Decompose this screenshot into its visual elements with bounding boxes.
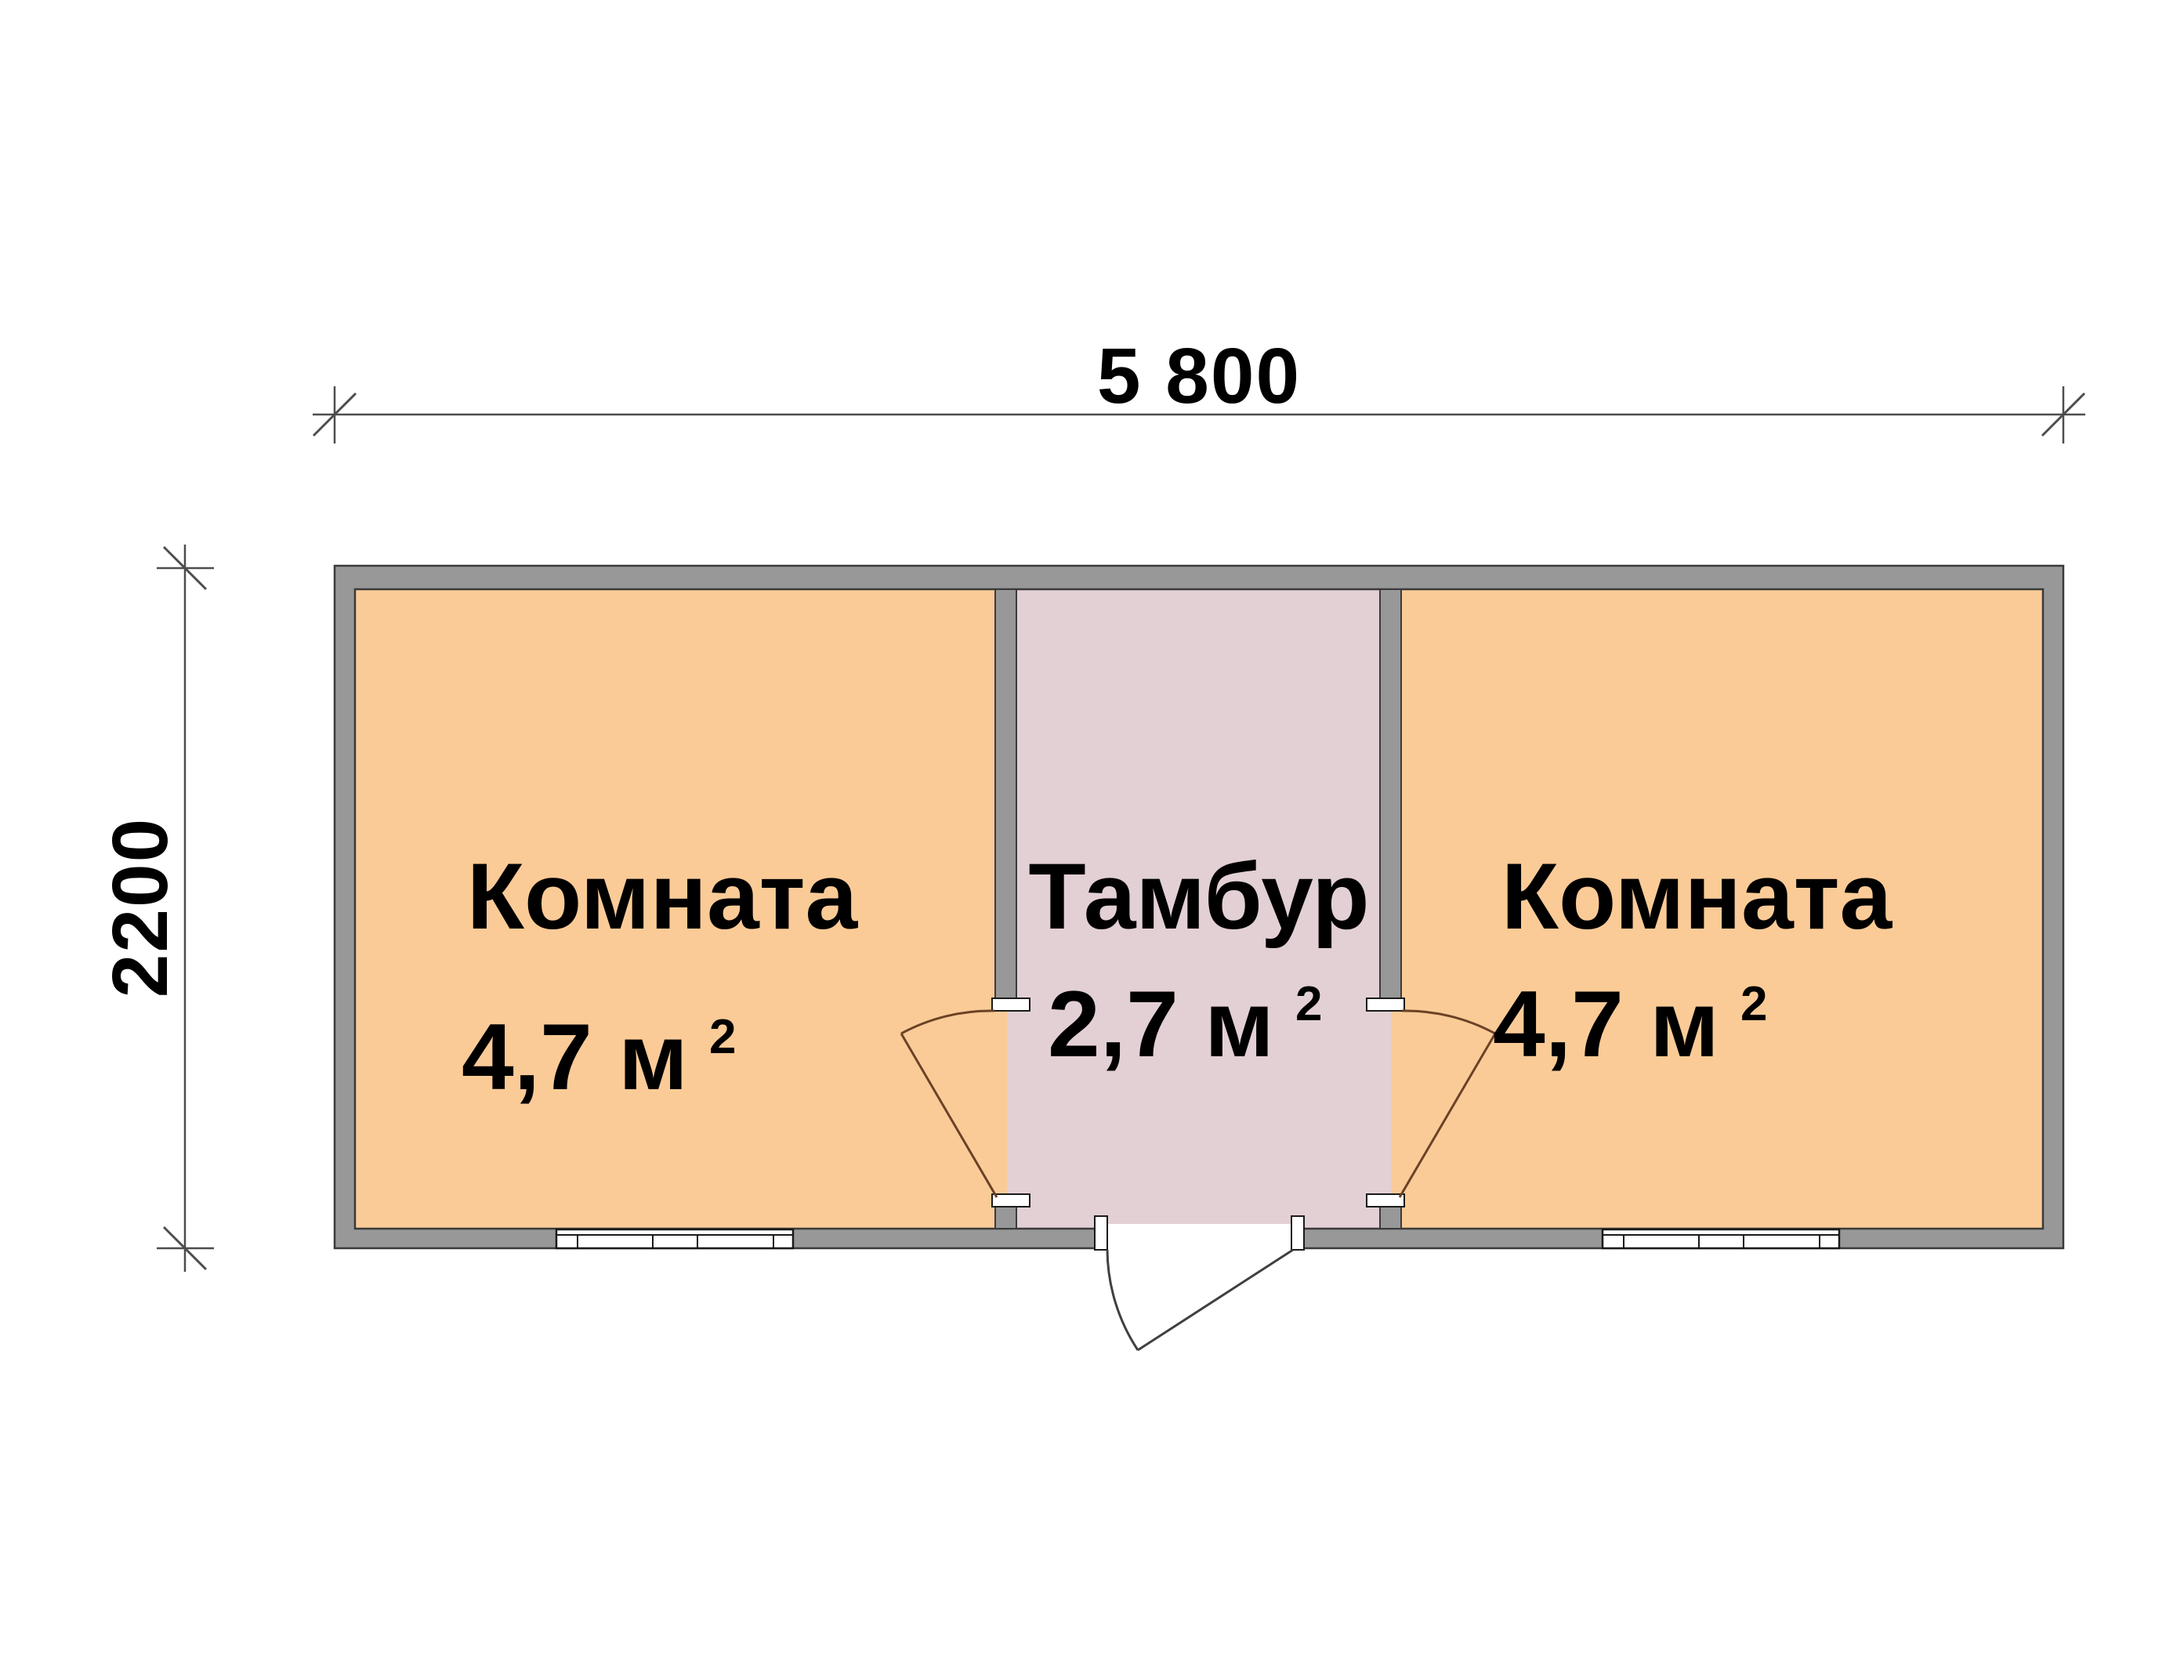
entrance-jamb-right — [1291, 1216, 1304, 1250]
dimension-height-label: 2200 — [96, 817, 184, 997]
partition-left-stub — [995, 1207, 1016, 1229]
partition-right-upper — [1380, 589, 1401, 998]
left-door-jamb-top — [992, 998, 1030, 1011]
room-right-area-sup: 2 — [1740, 977, 1767, 1031]
partition-left-upper — [995, 589, 1016, 998]
right-door-jamb-top — [1367, 998, 1404, 1011]
floor-plan-canvas: 5 800 2200 Комната 4,7 м 2 Тамбур 2,7 м … — [0, 0, 2184, 1680]
room-left-name: Комната — [467, 844, 859, 949]
room-right-area: 4,7 м — [1493, 972, 1719, 1077]
room-left-area: 4,7 м — [462, 1005, 688, 1110]
left-door-jamb-bottom — [992, 1194, 1030, 1207]
vestibule-name: Тамбур — [1028, 844, 1369, 949]
partition-right-stub — [1380, 1207, 1401, 1229]
window-right — [1603, 1229, 1839, 1248]
dimension-width-label: 5 800 — [1097, 332, 1301, 420]
entrance-opening — [1108, 1224, 1291, 1254]
floor-plan-drawing: 5 800 2200 Комната 4,7 м 2 Тамбур 2,7 м … — [0, 0, 2184, 1680]
vestibule-area-sup: 2 — [1295, 977, 1322, 1031]
entrance-jamb-left — [1095, 1216, 1107, 1250]
window-right-frame — [1603, 1229, 1839, 1248]
right-door-jamb-bottom — [1367, 1194, 1404, 1207]
window-left — [556, 1229, 793, 1248]
room-right-name: Комната — [1501, 844, 1893, 949]
vestibule-area: 2,7 м — [1048, 972, 1274, 1077]
window-left-frame — [556, 1229, 793, 1248]
room-left-area-sup: 2 — [709, 1010, 736, 1064]
